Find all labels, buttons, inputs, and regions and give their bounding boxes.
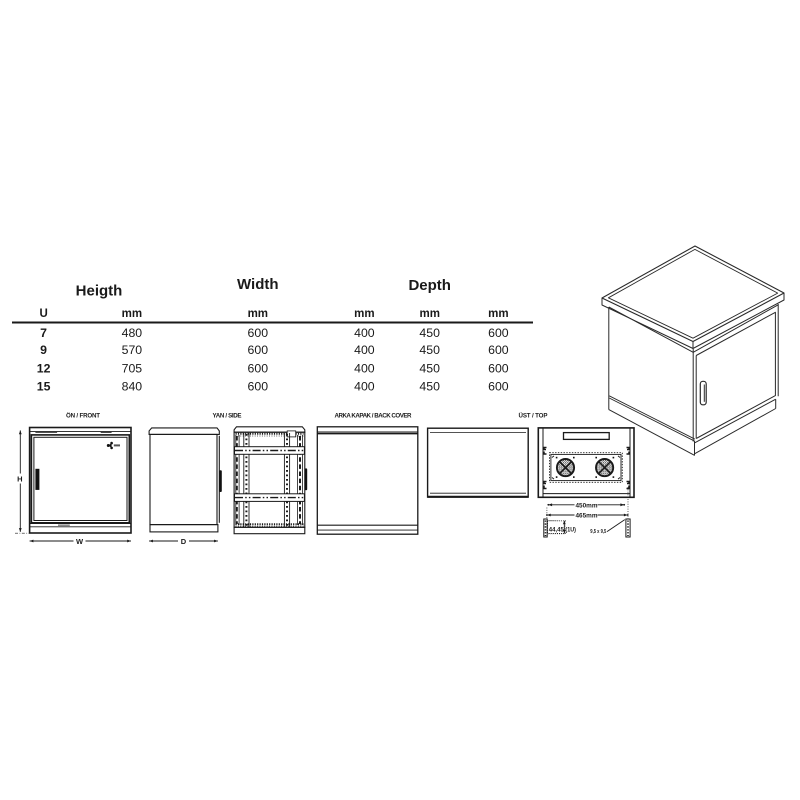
svg-text:mm: mm xyxy=(354,308,374,320)
svg-text:mm: mm xyxy=(122,308,142,320)
svg-text:12: 12 xyxy=(37,362,51,376)
svg-text:600: 600 xyxy=(488,343,509,357)
svg-text:mm: mm xyxy=(419,308,439,320)
svg-text:YAN / SIDE: YAN / SIDE xyxy=(213,413,242,420)
svg-text:mm: mm xyxy=(488,308,508,320)
svg-text:ÜST / TOP: ÜST / TOP xyxy=(519,413,548,420)
svg-text:705: 705 xyxy=(122,362,143,376)
svg-text:840: 840 xyxy=(122,380,143,394)
svg-text:W: W xyxy=(76,537,84,546)
svg-text:450: 450 xyxy=(419,326,440,340)
svg-text:600: 600 xyxy=(488,362,509,376)
svg-text:ARKA KAPAK / BACK COVER: ARKA KAPAK / BACK COVER xyxy=(335,413,413,420)
svg-text:600: 600 xyxy=(248,362,269,376)
svg-text:Heigth: Heigth xyxy=(76,283,123,300)
svg-text:9: 9 xyxy=(40,343,47,357)
svg-text:465mm: 465mm xyxy=(576,513,598,520)
svg-text:H: H xyxy=(17,474,22,483)
svg-text:15: 15 xyxy=(37,380,51,394)
svg-text:450: 450 xyxy=(419,362,440,376)
svg-text:400: 400 xyxy=(354,362,375,376)
svg-text:mm: mm xyxy=(248,308,268,320)
svg-text:Depth: Depth xyxy=(408,277,451,294)
svg-text:400: 400 xyxy=(354,326,375,340)
svg-text:600: 600 xyxy=(248,380,269,394)
svg-text:7: 7 xyxy=(40,326,47,340)
svg-text:(1U): (1U) xyxy=(565,526,576,533)
svg-text:ÖN / FRONT: ÖN / FRONT xyxy=(66,413,100,420)
svg-text:Width: Width xyxy=(237,276,279,293)
svg-text:U: U xyxy=(39,308,47,320)
svg-text:600: 600 xyxy=(488,380,509,394)
svg-text:600: 600 xyxy=(488,326,509,340)
svg-text:D: D xyxy=(181,537,187,546)
svg-text:480: 480 xyxy=(122,326,143,340)
svg-text:450: 450 xyxy=(419,343,440,357)
svg-text:9,5 x 9,5: 9,5 x 9,5 xyxy=(590,529,606,535)
svg-text:44,45: 44,45 xyxy=(549,526,565,533)
svg-text:450: 450 xyxy=(419,380,440,394)
svg-text:450mm: 450mm xyxy=(576,502,598,509)
svg-text:400: 400 xyxy=(354,380,375,394)
svg-text:570: 570 xyxy=(122,343,143,357)
svg-text:600: 600 xyxy=(248,343,269,357)
svg-text:400: 400 xyxy=(354,343,375,357)
svg-text:600: 600 xyxy=(248,326,269,340)
